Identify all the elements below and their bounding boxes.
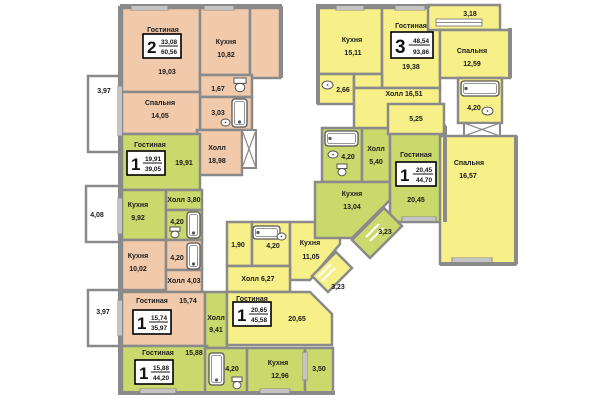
room-label: Гостиная [134,142,166,149]
room-label: 14,05 [151,113,169,120]
room-label: 9,92 [131,215,145,222]
badge-total-area: 39,05 [145,166,161,173]
room-label: Холл [367,146,385,153]
room-label: 4,20 [225,366,239,373]
badge-room-count: 1 [131,155,140,174]
room-label: 10,82 [217,52,235,59]
toilet-icon [337,164,347,176]
room-label: Кухня [342,191,362,198]
room-label: Гостиная [400,152,432,159]
room-hall-2room [197,130,242,175]
apartment-badge: 115,8844,20 [135,360,173,384]
room-label: Кухня [342,37,362,44]
room-label: 4,20 [170,219,184,226]
room-label: 4,20 [266,243,280,250]
badge-total-area: 45,58 [251,317,267,324]
room-label: 11,05 [302,254,319,261]
room-label: 3,18 [463,11,477,18]
badge-total-area: 93,86 [413,49,429,56]
room-label: 19,91 [175,160,193,167]
badge-living-area: 15,88 [153,365,169,372]
room-label: 4,08 [90,212,104,219]
room-label: 15,74 [179,298,197,305]
room-label: 1,90 [231,242,245,249]
room-label: 12,59 [463,61,481,68]
room-label: 9,41 [209,327,223,334]
room-label: Холл [207,315,225,322]
apartment-badge: 120,6545,58 [233,302,271,326]
room-label: 3,23 [331,284,345,291]
badge-living-area: 15,74 [151,315,167,322]
room-shape-corner-2room [250,8,280,78]
room-label: 19,03 [158,69,176,76]
room-label: 4,20 [341,154,355,161]
badge-total-area: 44,20 [153,375,169,382]
room-shape-kitchen-1room-b [122,240,166,290]
room-label: Гостиная [236,296,268,303]
room-label: 19,38 [402,64,420,71]
toilet-icon [234,78,246,92]
room-label: Холл [208,145,226,152]
room-label: Холл 3,80 [167,197,200,204]
room-label: Спальня [454,160,484,167]
badge-room-count: 1 [139,364,148,383]
tub-v-icon [232,99,247,127]
room-shape-hall-1room-e [362,128,390,182]
sink-icon [322,81,333,89]
toilet-icon [232,377,242,389]
room-label: 20,45 [407,197,425,204]
sink-icon [221,119,230,126]
apartment-badge: 120,4544,70 [396,162,436,186]
room-label: 3,50 [312,366,326,373]
room-label: 4,20 [467,105,481,112]
badge-living-area: 19,91 [145,156,161,163]
room-label: 15,88 [185,350,203,357]
room-label: 20,65 [288,316,306,323]
badge-living-area: 20,65 [251,307,267,314]
room-label: 16,57 [459,173,477,180]
room-label: 5,25 [409,116,423,123]
toilet-icon [170,227,180,238]
room-label: 2,66 [336,87,350,94]
room-kitchen-1room-c [247,348,305,393]
floor-plan-canvas: 233,0860,56119,9139,05115,7435,97115,884… [0,0,600,400]
tub-v-icon [187,243,200,269]
tub-v-icon [187,212,200,238]
room-corner-2room [250,8,280,78]
badge-total-area: 35,97 [151,325,167,332]
badge-living-area: 33,08 [161,39,177,46]
tub-h-icon [461,81,499,96]
badge-room-count: 1 [400,166,409,185]
room-label: 13,04 [343,204,361,211]
room-shape-bedroom-3room-b [440,136,516,264]
tub-v-icon [209,353,224,385]
room-label: Гостиная [395,23,427,30]
room-label: Гостиная [147,27,179,34]
badge-room-count: 1 [137,314,146,333]
room-label: Гостиная [136,298,168,305]
room-label: Холл 4,03 [167,278,200,285]
room-label: 3,97 [97,88,111,95]
room-label: Гостиная [142,350,174,357]
room-label: 18,98 [208,158,226,165]
room-label: 12,96 [271,373,289,380]
room-label: Кухня [128,253,148,260]
room-label: Холл 16,51 [385,91,422,98]
badge-total-area: 60,56 [161,49,177,56]
room-label: 10,02 [129,266,147,273]
room-shape-hall-3room-upper [354,74,382,88]
room-hall-1room-e [362,128,390,182]
room-kitchen-1room-b [122,240,166,290]
room-label: 1,67 [211,86,225,93]
room-label: Кухня [268,360,288,367]
room-shape-hall-2room [197,130,242,175]
apartment-badge: 115,7435,97 [133,310,171,334]
tub-h-icon [253,226,280,239]
room-label: Спальня [145,100,175,107]
sink-icon [482,107,493,115]
apartment-badge: 348,5493,86 [391,32,433,58]
room-label: 5,40 [369,159,383,166]
badge-total-area: 44,70 [416,177,432,184]
badge-room-count: 2 [147,38,156,57]
sink-icon [328,151,338,158]
room-shape-kitchen-1room-c [247,348,305,393]
room-balcony-397-bottom [88,290,120,346]
room-bedroom-3room-b [440,136,516,264]
badge-living-area: 48,54 [413,38,429,45]
badge-room-count: 1 [237,306,246,325]
apartment-badge: 119,9139,05 [127,151,165,175]
sink-icon [277,233,286,240]
room-hall-3room-upper [354,74,382,88]
badge-living-area: 20,45 [416,167,432,174]
apartment-badge: 233,0860,56 [143,34,181,58]
room-label: Кухня [128,202,148,209]
room-shape-balcony-397-bottom [88,290,120,346]
room-label: Спальня [457,48,487,55]
room-label: 4,20 [170,255,184,262]
room-label: Кухня [216,39,236,46]
tub-h-icon [325,131,358,146]
room-label: 3,23 [378,229,392,236]
badge-room-count: 3 [395,37,406,58]
floor-plan: 233,0860,56119,9139,05115,7435,97115,884… [0,0,600,400]
room-label: 3,03 [211,110,225,117]
room-label: Кухня [300,240,320,247]
room-label: 3,97 [96,309,110,316]
room-label: Холл 6,27 [241,276,274,283]
room-label: 15,11 [344,50,361,57]
